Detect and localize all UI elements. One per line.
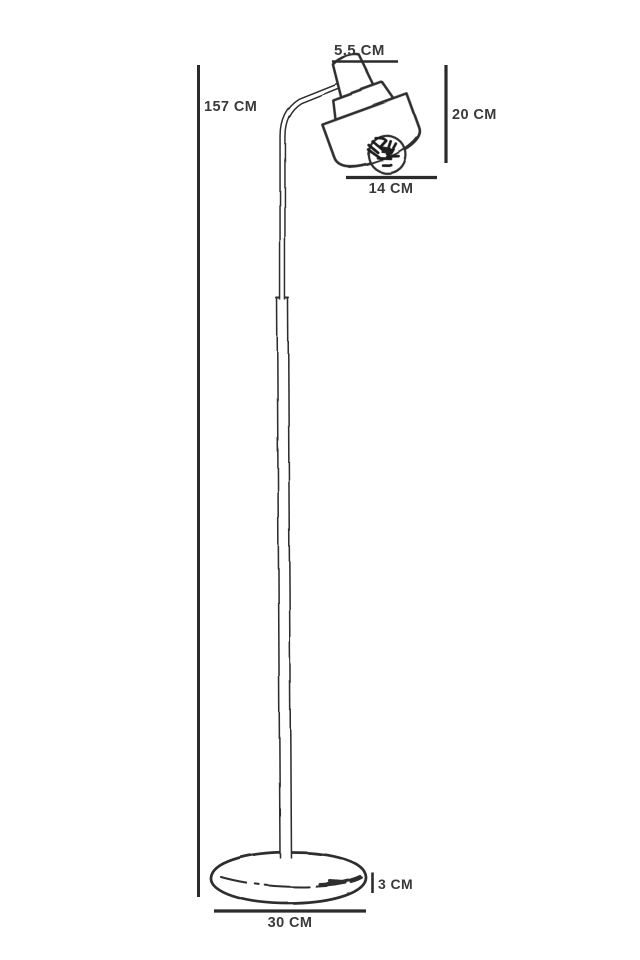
dim-label-head-width: 14 CM: [369, 182, 414, 197]
dim-label-total-height: 157 CM: [204, 100, 257, 115]
floor-lamp-line-art: [0, 0, 640, 960]
lamp-pole-lower: [283, 298, 286, 858]
dim-label-base-thickness: 3 CM: [378, 877, 413, 891]
dim-label-head-height: 20 CM: [452, 108, 497, 123]
technical-drawing-canvas: 157 CM 5.5 CM 20 CM 14 CM 3 CM 30 CM: [0, 0, 640, 960]
lamp-base: [211, 852, 366, 904]
base-outline: [211, 852, 366, 904]
dim-label-base-width: 30 CM: [268, 916, 313, 931]
dim-label-head-top-width: 5.5 CM: [334, 43, 385, 58]
lamp-head: [303, 41, 430, 189]
